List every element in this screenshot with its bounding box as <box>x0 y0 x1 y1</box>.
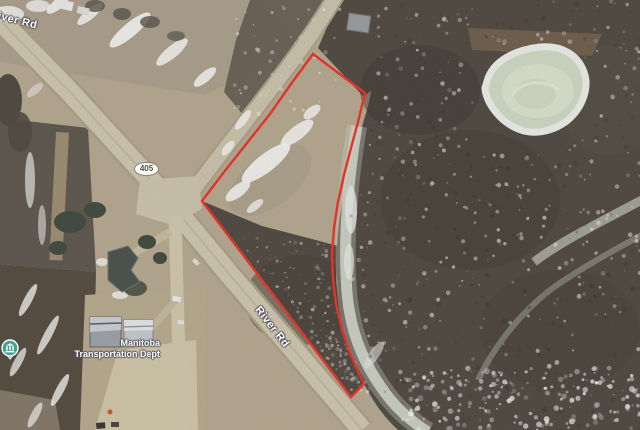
satellite-imagery <box>0 0 640 430</box>
route-shield-405: 405 <box>134 162 159 176</box>
route-shield-number: 405 <box>140 165 153 173</box>
government-building-icon[interactable] <box>0 338 20 362</box>
satellite-map-canvas[interactable]: River Rd River Rd 405 Manitoba Transport… <box>0 0 640 430</box>
image-grain <box>0 0 640 430</box>
